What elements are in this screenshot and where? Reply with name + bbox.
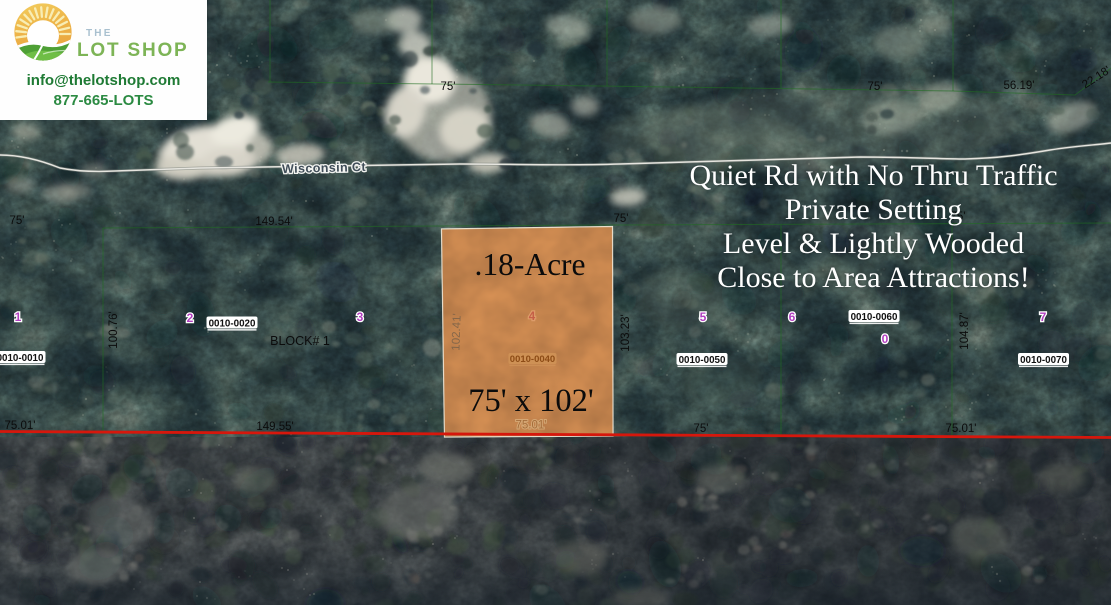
svg-text:0010-0070: 0010-0070	[1020, 355, 1067, 366]
svg-text:104.87': 104.87'	[959, 312, 971, 349]
svg-text:0: 0	[882, 332, 889, 346]
svg-text:BLOCK# 1: BLOCK# 1	[270, 334, 330, 348]
svg-text:0010-0040: 0010-0040	[510, 354, 555, 365]
svg-text:100.76': 100.76'	[108, 311, 120, 348]
svg-text:0010-0020: 0010-0020	[209, 319, 256, 330]
svg-text:.18-Acre: .18-Acre	[474, 247, 585, 282]
svg-text:2: 2	[187, 311, 194, 325]
svg-text:5: 5	[700, 310, 707, 324]
svg-text:4: 4	[529, 311, 536, 323]
svg-text:75': 75'	[441, 81, 456, 93]
svg-text:75.01': 75.01'	[516, 420, 547, 432]
svg-text:102.41': 102.41'	[450, 313, 463, 351]
svg-text:0010-0010: 0010-0010	[0, 353, 44, 364]
svg-text:75': 75'	[10, 215, 25, 227]
svg-text:6: 6	[789, 310, 796, 324]
svg-text:0010-0050: 0010-0050	[679, 355, 726, 366]
svg-text:149.55': 149.55'	[256, 421, 293, 433]
svg-text:0010-0060: 0010-0060	[851, 312, 898, 323]
svg-text:75.01': 75.01'	[946, 423, 977, 435]
svg-text:7: 7	[1040, 310, 1047, 324]
svg-text:3: 3	[357, 310, 364, 324]
svg-text:75' x 102': 75' x 102'	[468, 383, 593, 419]
svg-text:75': 75'	[694, 423, 709, 435]
svg-text:Wisconsin Ct: Wisconsin Ct	[282, 160, 367, 176]
svg-text:1: 1	[15, 310, 22, 324]
svg-text:149.54': 149.54'	[255, 216, 292, 228]
svg-text:75.01': 75.01'	[5, 420, 36, 432]
svg-text:56.19': 56.19'	[1004, 80, 1035, 92]
svg-text:75': 75'	[868, 81, 883, 93]
svg-text:103.23': 103.23'	[620, 314, 632, 351]
